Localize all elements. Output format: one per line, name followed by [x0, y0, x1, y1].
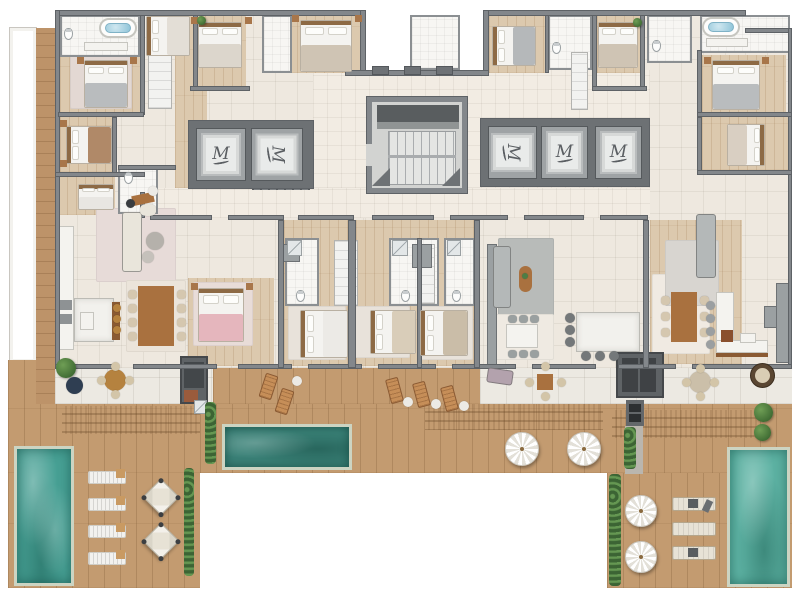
nightstand	[246, 283, 253, 290]
bathtub	[702, 17, 740, 37]
cooktop	[80, 312, 94, 330]
cushion	[755, 368, 770, 383]
blanket	[443, 311, 467, 355]
wall	[228, 215, 284, 220]
swimming-pool	[14, 446, 74, 586]
elevator-car: M	[541, 126, 588, 179]
pillow	[72, 146, 79, 160]
wall	[524, 215, 584, 220]
wall	[372, 215, 434, 220]
wall	[278, 220, 284, 368]
terrace-table	[537, 374, 553, 390]
nightstand	[704, 57, 711, 64]
bar-stool	[113, 315, 121, 323]
blanket	[513, 27, 535, 65]
headboard	[599, 23, 637, 27]
headboard	[421, 311, 425, 355]
bar-stool	[581, 351, 591, 361]
wall	[483, 10, 489, 76]
side-table	[403, 397, 413, 407]
dining-chair	[519, 350, 528, 358]
nightstand	[60, 120, 67, 127]
stair-landing	[377, 105, 459, 122]
blanket	[392, 311, 415, 353]
pillow	[202, 28, 218, 35]
pillow	[738, 67, 755, 75]
sofa	[493, 246, 511, 308]
wardrobe	[571, 52, 588, 110]
bed	[198, 288, 244, 342]
elevator-car: M	[251, 128, 303, 181]
hedge-planter	[184, 468, 194, 576]
pillow	[108, 67, 124, 74]
terrace-chair	[97, 376, 106, 385]
pillow	[427, 335, 434, 352]
bed	[66, 126, 112, 164]
hanging-chair	[750, 363, 775, 388]
tree	[197, 16, 206, 25]
umbrella-pole	[520, 447, 524, 451]
bathtub	[99, 18, 137, 38]
kitchen-counter	[58, 226, 74, 350]
wall	[133, 364, 217, 369]
terrace-table	[689, 371, 711, 393]
pillow	[152, 20, 159, 34]
stair-corner	[372, 168, 390, 186]
counter-shelf	[716, 353, 768, 357]
lounger-pillow	[116, 523, 125, 532]
pillow	[305, 27, 324, 35]
bar-stool	[706, 314, 715, 323]
kitchen-island	[576, 312, 640, 352]
pillow	[498, 30, 505, 44]
toilet-tank	[554, 43, 559, 46]
bed	[300, 20, 352, 72]
nightstand	[355, 15, 362, 22]
pool-skylight	[10, 28, 36, 362]
bed	[712, 60, 760, 110]
parasol	[505, 432, 539, 466]
toilet-tank	[126, 173, 131, 176]
pillow	[223, 295, 240, 303]
pillow	[498, 48, 505, 62]
toilet-tank	[298, 291, 303, 294]
toilet-tank	[66, 29, 71, 32]
bed	[598, 22, 638, 68]
wood-deck	[36, 28, 55, 406]
bed	[78, 184, 114, 210]
dining-chair	[508, 350, 517, 358]
window	[404, 66, 421, 75]
tree	[56, 358, 76, 378]
umbrella-pole	[582, 447, 586, 451]
wood-deck	[213, 368, 480, 404]
dining-chair	[661, 296, 670, 305]
wall	[150, 215, 212, 220]
nightstand	[130, 57, 137, 64]
blanket	[167, 17, 189, 55]
lounger-pillow	[116, 496, 125, 505]
dining-chair	[508, 315, 517, 323]
parasol	[567, 432, 601, 466]
toilet	[401, 290, 410, 302]
wall	[452, 364, 516, 369]
side-table	[292, 376, 302, 386]
wall	[788, 28, 792, 369]
sofa	[122, 212, 142, 272]
plant	[522, 273, 528, 279]
hedge-planter	[205, 402, 216, 464]
tree	[633, 18, 642, 27]
pillow	[754, 147, 760, 162]
coffee-table	[519, 266, 532, 292]
pillow	[620, 28, 634, 35]
wall	[474, 220, 480, 368]
elevator-car: M	[595, 126, 642, 179]
headboard	[199, 289, 243, 293]
stair-corner	[442, 168, 460, 186]
vanity	[84, 42, 128, 51]
wall	[298, 215, 354, 220]
elevator-car: M	[196, 128, 246, 181]
bathroom-floor	[647, 15, 692, 63]
terrace-chair	[682, 378, 691, 387]
headboard	[760, 125, 764, 165]
parasol	[625, 495, 657, 527]
wall	[348, 220, 356, 368]
bed	[492, 26, 536, 66]
bar-stool	[706, 327, 715, 336]
wall	[697, 50, 702, 116]
terrace-chair	[111, 362, 120, 371]
appliance	[60, 314, 72, 324]
nightstand	[77, 57, 84, 64]
headboard	[493, 27, 497, 65]
blanket	[728, 125, 747, 165]
bed	[198, 22, 242, 68]
blanket	[88, 127, 111, 163]
side-table	[431, 399, 441, 409]
terrace-table	[104, 369, 126, 391]
elevator-car-floor: M	[201, 133, 241, 176]
pillow	[376, 314, 383, 330]
hedge-planter	[624, 427, 636, 469]
elevator-car-floor: M	[491, 133, 534, 172]
pillow	[602, 28, 616, 35]
elevator-car: M	[488, 126, 537, 179]
blanket	[79, 197, 113, 209]
elevator-car-floor: M	[600, 131, 637, 174]
bar-stool	[609, 351, 619, 361]
toilet-tank	[654, 41, 659, 44]
tree	[754, 424, 771, 441]
window	[436, 66, 453, 75]
vanity	[706, 38, 748, 47]
bar-stool	[706, 340, 715, 349]
terrace-chair	[696, 364, 705, 373]
dining-chair	[128, 332, 137, 341]
dining-table	[138, 286, 174, 346]
toilet	[124, 172, 133, 184]
toilet	[652, 40, 661, 52]
dining-chair	[177, 332, 186, 341]
pillow	[427, 315, 434, 332]
blanket	[301, 45, 351, 71]
wall	[600, 215, 648, 220]
bar-stool	[565, 325, 575, 335]
bar-stool	[565, 313, 575, 323]
cabinet	[412, 244, 432, 268]
dining-chair	[128, 318, 137, 327]
blanket	[199, 314, 243, 341]
pillow	[222, 28, 238, 35]
dining-chair	[177, 304, 186, 313]
wall	[483, 10, 746, 16]
terrace-chair	[710, 378, 719, 387]
side-table	[148, 186, 158, 196]
shower	[287, 240, 302, 256]
elevator-car-floor: M	[256, 134, 299, 176]
headboard	[301, 311, 305, 357]
swimming-pool	[727, 447, 790, 587]
toilet	[452, 290, 461, 302]
stair-landing-edge	[377, 122, 459, 129]
wall	[697, 112, 792, 117]
dining-chair	[661, 328, 670, 337]
wall	[55, 10, 366, 16]
nightstand	[60, 160, 67, 167]
elevator-car-floor: M	[546, 131, 583, 174]
bed	[727, 124, 765, 166]
wood-deck	[8, 360, 36, 406]
bar-stool	[595, 351, 605, 361]
terrace-chair	[557, 378, 566, 387]
toilet-tank	[403, 291, 408, 294]
wall	[697, 117, 702, 173]
pillow	[82, 188, 95, 192]
tub-water	[708, 22, 734, 32]
terrace-chair	[525, 378, 534, 387]
stair-rail	[388, 155, 456, 158]
lounger-pillow	[116, 550, 125, 559]
pillow	[203, 295, 220, 303]
terrace-chair	[111, 390, 120, 399]
wall	[545, 15, 549, 73]
dining-chair	[530, 350, 539, 358]
wall	[140, 15, 145, 115]
terrace-chair	[125, 376, 134, 385]
coffee-table	[146, 232, 164, 250]
bed	[420, 310, 468, 356]
stove	[721, 330, 733, 342]
bathroom-floor	[410, 15, 460, 70]
tub-water	[105, 23, 131, 33]
bar-stool	[706, 301, 715, 310]
blanket	[713, 84, 759, 109]
wall	[58, 112, 144, 117]
wall	[640, 15, 645, 90]
headboard	[713, 61, 759, 65]
toilet	[64, 28, 73, 40]
pillow	[376, 334, 383, 350]
wall	[697, 170, 792, 175]
wall	[118, 165, 176, 170]
bed	[146, 16, 190, 56]
bar-stool	[565, 337, 575, 347]
nightstand	[292, 15, 299, 22]
terrace-chair	[541, 392, 550, 401]
wall	[692, 364, 792, 369]
pergola-shade	[62, 406, 200, 434]
oven	[764, 306, 777, 328]
lounger-cushion	[688, 548, 698, 557]
dining-table	[671, 292, 697, 342]
wall	[112, 117, 117, 175]
appliance	[60, 300, 72, 310]
hedge-planter	[609, 474, 621, 586]
dining-chair	[519, 315, 528, 323]
lounger-cushion	[688, 499, 698, 508]
pillow	[97, 188, 110, 192]
dining-chair	[661, 312, 670, 321]
wall	[592, 86, 647, 91]
nightstand	[191, 283, 198, 290]
pillow	[754, 128, 760, 143]
bed	[300, 310, 348, 358]
dining-chair	[128, 304, 137, 313]
umbrella-pole	[639, 555, 643, 559]
wall	[190, 86, 250, 91]
bar-stool	[113, 304, 121, 312]
tree	[754, 403, 773, 422]
dining-chair	[530, 315, 539, 323]
dining-chair	[128, 290, 137, 299]
headboard	[67, 127, 71, 163]
blanket	[85, 83, 127, 107]
stair-door-gap	[366, 144, 372, 166]
pillow	[328, 27, 347, 35]
desk-chair	[126, 199, 135, 208]
pillow	[72, 130, 79, 144]
bar-stool	[113, 326, 121, 334]
shower	[447, 240, 461, 256]
headboard	[147, 17, 151, 55]
pillow	[152, 38, 159, 52]
grill-plate	[629, 414, 641, 422]
coffee-table	[142, 251, 154, 263]
umbrella-pole	[639, 509, 643, 513]
nightstand	[245, 17, 252, 24]
bathroom-floor	[262, 15, 292, 73]
parasol	[625, 541, 657, 573]
wall	[643, 220, 649, 368]
cooktop	[740, 333, 756, 343]
toilet-tank	[454, 291, 459, 294]
wall	[745, 28, 792, 33]
blanket	[199, 44, 241, 67]
bed	[84, 60, 128, 108]
headboard	[371, 311, 375, 353]
headboard	[199, 23, 241, 27]
pillow	[307, 336, 314, 353]
bed	[370, 310, 416, 354]
terrace-chair	[696, 392, 705, 401]
lounge-chair	[66, 377, 83, 394]
wall	[378, 364, 436, 369]
wall	[592, 15, 597, 90]
shower	[392, 240, 408, 256]
side-table	[459, 401, 469, 411]
headboard	[301, 21, 351, 25]
sofa	[696, 214, 716, 278]
nightstand	[762, 57, 769, 64]
grill-plate	[629, 404, 641, 412]
terrace-chair	[541, 362, 550, 371]
window	[372, 66, 389, 75]
floor-plan-canvas: MMMMM	[0, 0, 800, 600]
dining-chair	[177, 318, 186, 327]
lounger-pillow	[116, 469, 125, 478]
toilet	[296, 290, 305, 302]
blanket	[323, 311, 347, 357]
dining-table	[506, 324, 538, 348]
pillow	[717, 67, 734, 75]
blanket	[599, 44, 637, 67]
sun-lounger	[672, 522, 716, 536]
pillow	[88, 67, 104, 74]
headboard	[85, 61, 127, 65]
pillow	[307, 315, 314, 332]
swimming-pool	[222, 424, 352, 470]
toilet	[552, 42, 561, 54]
armchair	[140, 204, 156, 216]
dining-chair	[177, 290, 186, 299]
